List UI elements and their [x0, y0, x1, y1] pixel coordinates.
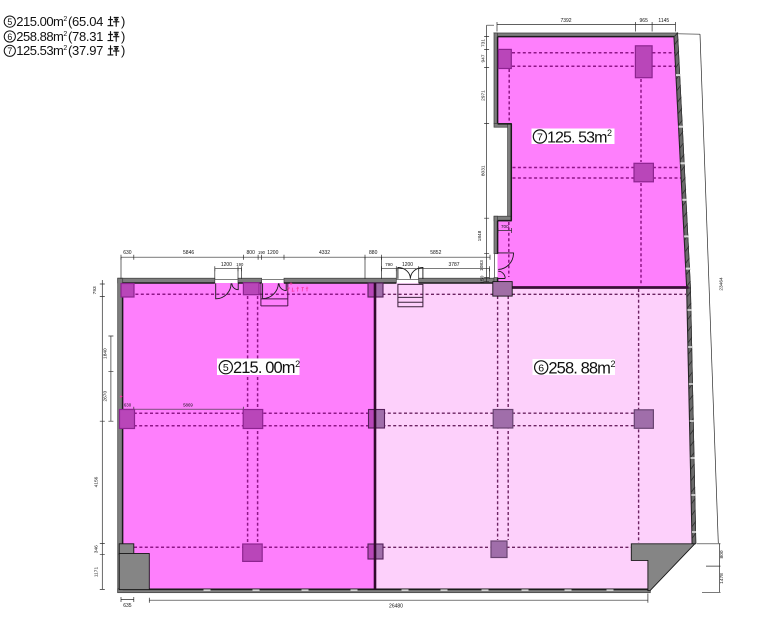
svg-text:700: 700 [501, 224, 509, 229]
svg-text:1478: 1478 [719, 573, 725, 584]
svg-text:630: 630 [123, 250, 132, 256]
svg-text:5869: 5869 [183, 403, 193, 408]
svg-text:800: 800 [719, 550, 725, 558]
svg-text:947: 947 [480, 54, 486, 62]
svg-text:7: 7 [537, 131, 543, 143]
svg-text:(78.31: (78.31 [68, 29, 103, 44]
svg-text:1200: 1200 [221, 262, 232, 268]
svg-text:(37.97: (37.97 [68, 43, 103, 58]
svg-text:5852: 5852 [430, 250, 441, 256]
svg-text:125.53m2: 125.53m2 [16, 43, 67, 58]
svg-text:125. 53m2: 125. 53m2 [547, 128, 612, 146]
svg-text:(65.04: (65.04 [68, 14, 103, 29]
svg-text:8031: 8031 [480, 165, 486, 176]
svg-text:2670: 2670 [103, 391, 109, 402]
svg-text:1840: 1840 [103, 348, 109, 359]
svg-text:7: 7 [7, 46, 12, 56]
svg-text:190: 190 [236, 262, 244, 267]
svg-text:215. 00m2: 215. 00m2 [233, 359, 300, 377]
svg-text:258. 88m2: 258. 88m2 [548, 359, 615, 377]
svg-text:630: 630 [124, 403, 132, 408]
svg-text:215.00m2: 215.00m2 [16, 14, 67, 29]
svg-text:): ) [121, 14, 125, 29]
svg-text:6: 6 [7, 32, 12, 42]
svg-text:1200: 1200 [267, 250, 278, 256]
svg-text:5: 5 [7, 17, 12, 27]
svg-text:1083: 1083 [479, 260, 485, 271]
svg-text:23464: 23464 [719, 277, 725, 291]
svg-text:1848: 1848 [477, 230, 483, 241]
svg-text:): ) [121, 43, 125, 58]
svg-text:): ) [121, 29, 125, 44]
svg-text:3787: 3787 [448, 262, 459, 268]
svg-text:258.88m2: 258.88m2 [16, 29, 67, 44]
svg-text:5846: 5846 [183, 250, 194, 256]
svg-text:7392: 7392 [560, 18, 571, 24]
svg-text:793: 793 [92, 286, 98, 294]
svg-text:190: 190 [258, 250, 266, 255]
svg-text:635: 635 [123, 603, 132, 609]
svg-text:6: 6 [538, 362, 544, 374]
svg-text:26480: 26480 [389, 603, 403, 609]
svg-text:2971: 2971 [480, 90, 486, 101]
svg-text:4332: 4332 [319, 250, 330, 256]
svg-text:346: 346 [94, 545, 100, 553]
svg-text:1171: 1171 [94, 567, 100, 578]
svg-text:5: 5 [223, 362, 229, 374]
svg-text:731: 731 [480, 39, 486, 47]
svg-text:1145: 1145 [658, 18, 669, 24]
svg-text:150: 150 [480, 275, 486, 283]
svg-text:800: 800 [247, 250, 256, 256]
svg-text:1200: 1200 [402, 262, 413, 268]
svg-text:790: 790 [385, 262, 393, 267]
svg-text:4156: 4156 [94, 476, 100, 487]
svg-text:880: 880 [369, 250, 378, 256]
svg-text:965: 965 [640, 18, 649, 24]
